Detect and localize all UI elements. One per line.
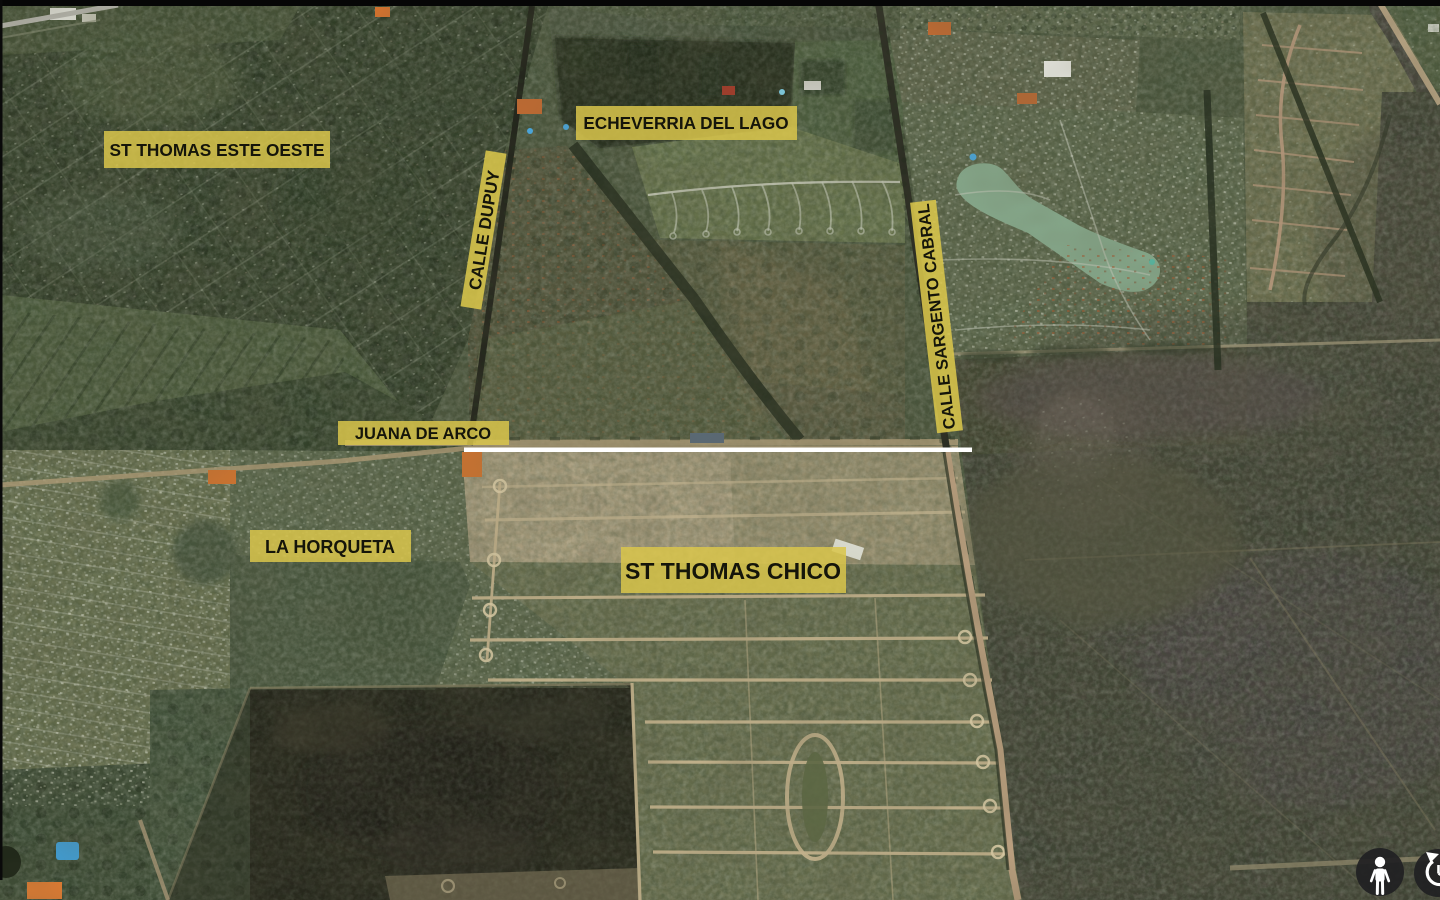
svg-text:ST THOMAS ESTE OESTE: ST THOMAS ESTE OESTE xyxy=(109,140,324,160)
svg-text:ECHEVERRIA DEL LAGO: ECHEVERRIA DEL LAGO xyxy=(583,113,788,133)
svg-text:JUANA DE ARCO: JUANA DE ARCO xyxy=(355,425,491,443)
svg-text:LA HORQUETA: LA HORQUETA xyxy=(265,537,395,557)
svg-text:ST THOMAS CHICO: ST THOMAS CHICO xyxy=(625,558,841,584)
